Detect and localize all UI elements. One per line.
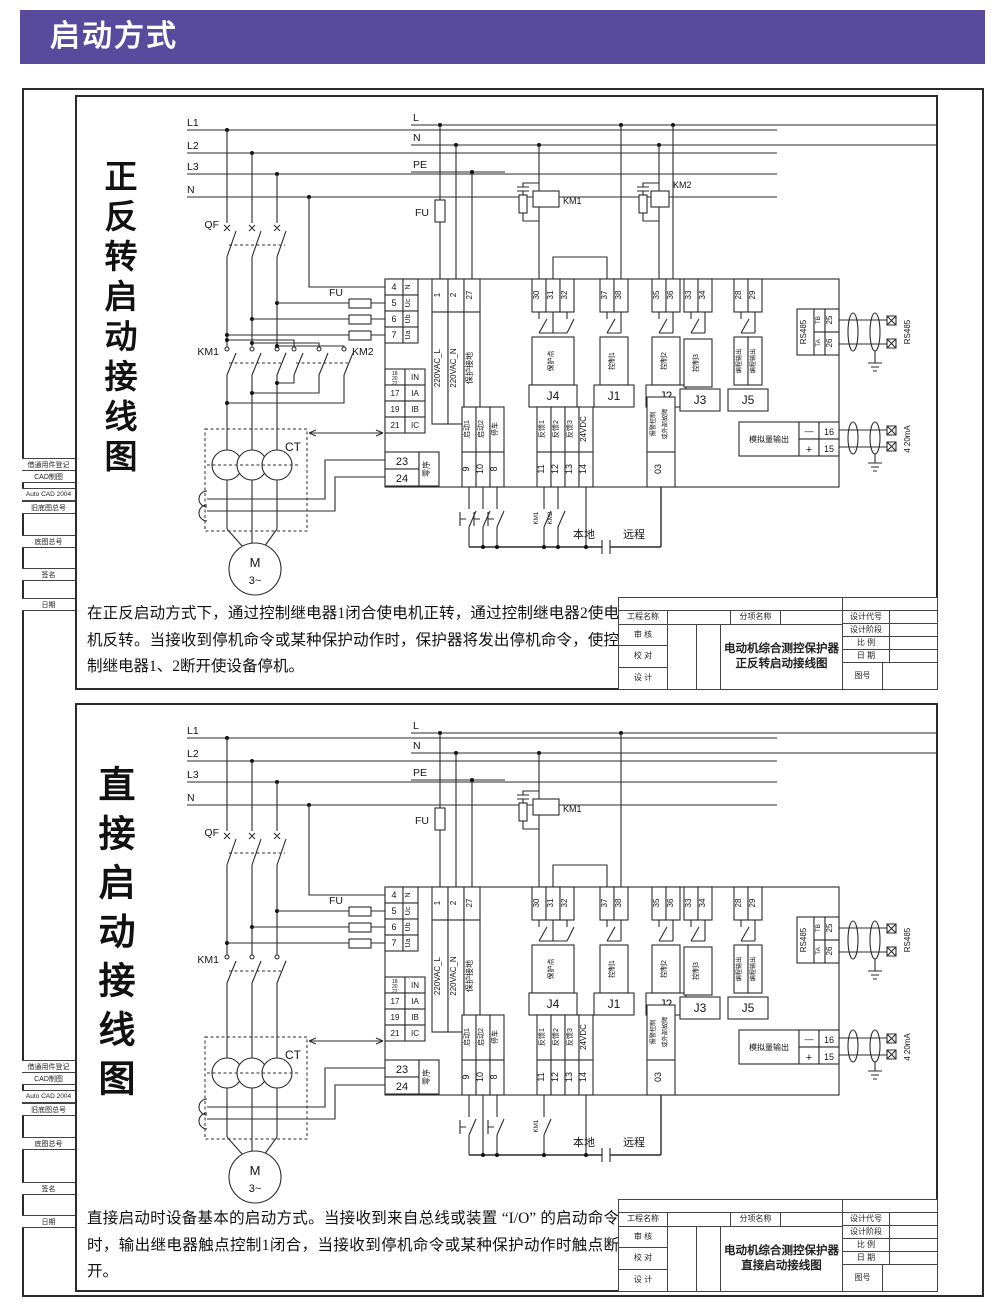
terminal-38: 38 [614, 290, 623, 299]
di-stop-label: 停车 [490, 1030, 499, 1044]
sidebar-cell-sign: 签名 [22, 568, 75, 581]
titleblock-date-label: 日 期 [842, 1251, 890, 1265]
terminal-32: 32 [560, 290, 569, 299]
terminal-10: 10 [475, 1072, 485, 1082]
terminal-29: 29 [748, 898, 757, 907]
terminal-34: 34 [698, 898, 707, 907]
ct-label: CT [285, 1048, 302, 1062]
rail-l-label: L [413, 720, 419, 732]
di-fb3-label: 反馈3 [565, 420, 574, 438]
di-fb1-label: 反馈1 [537, 1028, 546, 1046]
qf-label: QF [204, 827, 219, 839]
km1-aux-label: KM1 [533, 1119, 540, 1132]
terminal-16: 16 [824, 1035, 834, 1045]
terminal-8: 8 [489, 1074, 499, 1079]
terminal-28: 28 [734, 898, 743, 907]
j1-label: J1 [608, 389, 621, 403]
terminal-33: 33 [684, 290, 693, 299]
terminal-19: 19 [391, 405, 400, 414]
terminal-5-fn: Uc [405, 298, 412, 307]
zero-seq-terminals: 23 24 零序 [385, 1060, 439, 1094]
rail-l3-label: L3 [187, 769, 199, 781]
right-power-rails: L N PE FU KM1 [411, 720, 937, 887]
terminal-24: 24 [396, 473, 408, 485]
terminal-16: 16 [824, 427, 834, 437]
rs485-ext-label: RS485 [903, 927, 912, 952]
rail-l1-label: L1 [187, 725, 199, 737]
terminal-33: 33 [684, 898, 693, 907]
fu-label: FU [329, 287, 343, 299]
voltage-terminals: 4 5 6 7 N Uc Ub Ua [385, 279, 418, 343]
terminal-27: 27 [465, 290, 474, 299]
relay-group-j4: 30 31 32 保护点 J4 [529, 887, 577, 1015]
titleblock-proof-label: 校 对 [618, 645, 668, 668]
titleblock-proof-label: 校 对 [618, 1247, 668, 1270]
rs485-screw-terminals [887, 924, 896, 956]
rs485-ground-icon [868, 959, 882, 979]
sidebar-cell-base-no: 底图总号 [22, 1137, 75, 1150]
terminal-9: 9 [461, 1074, 471, 1079]
km1-label: KM1 [197, 954, 219, 966]
terminal-4-fn: N [405, 892, 412, 897]
terminal-25: 25 [825, 923, 834, 932]
km1-coil-label: KM1 [563, 804, 582, 814]
titleblock-subitem-label: 分项名称 [730, 610, 781, 625]
titleblock-stage-value [889, 1225, 938, 1239]
terminal-35: 35 [652, 290, 661, 299]
terminal-25: 25 [825, 315, 834, 324]
page-title: 启动方式 [50, 20, 178, 53]
local-label: 本地 [573, 527, 595, 541]
km1-coil-label: KM1 [563, 196, 582, 206]
titleblock-subitem-value [780, 1212, 843, 1227]
sidebar-cell-autocad: Auto CAD 2004 [22, 1090, 75, 1103]
current-terminals: 18 20 22 IN 17 IA 19 IB 21 IC [385, 369, 425, 433]
terminal-6: 6 [391, 922, 396, 932]
relay-group-j1: 37 38 控制1 J1 [594, 279, 634, 407]
j5-label: J5 [742, 1001, 755, 1015]
titleblock-code-value [889, 610, 938, 624]
relay-group-j2: 35 36 控制2 J2 [646, 887, 686, 1015]
titleblock-diagram-name: 正反转启动接线图 [736, 658, 828, 671]
terminal-1: 1 [433, 900, 442, 905]
terminal-32: 32 [560, 898, 569, 907]
terminal-37: 37 [600, 290, 609, 299]
titleblock-fig-label: 图号 [842, 662, 883, 690]
direct-start-frame: 直接启动接线图 L1 L2 L3 N QF KM1 [75, 703, 938, 1292]
terminal-11: 11 [536, 464, 546, 473]
km2-label: KM2 [352, 346, 374, 358]
terminal-23: 23 [396, 456, 408, 468]
analog-ext-label: 4 20mA [903, 1033, 912, 1061]
terminal-13: 13 [564, 464, 574, 474]
zero-seq-label: 零序 [421, 461, 431, 477]
terminal-37: 37 [600, 898, 609, 907]
voltage-terminals: 4 5 6 7 N Uc Ub Ua [385, 887, 418, 951]
di-fb1-label: 反馈1 [537, 420, 546, 438]
titleblock-review-label: 审 核 [618, 624, 668, 646]
titleblock-scale-label: 比 例 [842, 636, 890, 650]
in-label: IN [411, 373, 419, 382]
bridge-31-37 [553, 257, 607, 279]
sidebar-cell-date: 日期 [22, 598, 75, 611]
terminal-4-fn: N [405, 284, 412, 289]
forward-reverse-titleblock: 工程名称 分项名称 审 核 校 对 设 计 电动机综合测控保护器 正反转启动接线… [618, 597, 938, 690]
titleblock-fig-value [882, 1264, 938, 1292]
terminal-19: 19 [391, 1013, 400, 1022]
zero-seq-terminals: 23 24 零序 [385, 452, 439, 486]
titleblock-project-value [667, 1212, 731, 1227]
rail-n-label: N [187, 792, 195, 804]
j2-fn: 控制2 [659, 352, 668, 370]
ic-label: IC [411, 1029, 419, 1038]
terminal-2-fn: 220VAC_N [449, 348, 458, 388]
j4-label: J4 [547, 389, 560, 403]
direct-start-titleblock: 工程名称 分项名称 审 核 校 对 设 计 电动机综合测控保护器 直接启动接线图… [618, 1199, 938, 1292]
relay-group-j1: 37 38 控制1 J1 [594, 887, 634, 1015]
titleblock-device-name: 电动机综合测控保护器 [724, 1245, 839, 1258]
in-num-22: 22 [392, 989, 398, 995]
analog-label: 模拟量输出 [749, 1042, 789, 1052]
terminal-15: 15 [824, 444, 834, 454]
sidebar-cell-sign: 签名 [22, 1182, 75, 1195]
rail-n-label: N [187, 184, 195, 196]
terminal-30: 30 [532, 898, 541, 907]
sidebar-cell-cad: CAD制图 [22, 1072, 75, 1085]
rail-pe-label: PE [413, 767, 427, 779]
power-terminals: 1 2 27 220VAC_L 220VAC_N 保护接地 [432, 279, 480, 424]
j5-fn1: 编程输出 [735, 957, 743, 982]
j1-fn: 控制1 [607, 352, 616, 370]
rail-n2-label: N [413, 740, 421, 752]
titleblock-code-label: 设计代号 [842, 1212, 890, 1226]
titleblock-device-name: 电动机综合测控保护器 [724, 643, 839, 656]
titleblock-fig-label: 图号 [842, 1264, 883, 1292]
di-fb2-label: 反馈2 [551, 1028, 560, 1046]
terminal-7-fn: Ua [405, 330, 412, 339]
j2-fn: 控制2 [659, 960, 668, 978]
j5-label: J5 [742, 393, 755, 407]
j5-fn1: 编程输出 [735, 349, 743, 374]
titleblock-sign-col1 [667, 1226, 697, 1292]
terminal-7-fn: Ua [405, 938, 412, 947]
terminal-29: 29 [748, 290, 757, 299]
relay-group-j2: 35 36 控制2 J2 [646, 279, 686, 407]
sidebar-cell-date: 日期 [22, 1215, 75, 1228]
sidebar-cell-old-no: 旧底图总号 [22, 501, 75, 514]
km1-main-contacts: KM1 [197, 954, 286, 1137]
terminal-38: 38 [614, 898, 623, 907]
analog-minus: — [805, 426, 814, 436]
terminal-13: 13 [564, 1072, 574, 1082]
titleblock-project-label: 工程名称 [618, 1212, 668, 1227]
titleblock-drawing-name: 电动机综合测控保护器 直接启动接线图 [720, 1226, 843, 1292]
terminal-17: 17 [391, 997, 400, 1006]
titleblock-code-label: 设计代号 [842, 610, 890, 624]
j3-fn: 控制3 [691, 962, 700, 980]
analog-screw-terminals [887, 1034, 896, 1059]
titleblock-subitem-label: 分项名称 [730, 1212, 781, 1227]
di-start1-label: 启动1 [462, 420, 471, 438]
rs485-ext-label: RS485 [903, 319, 912, 344]
terminal-10: 10 [475, 464, 485, 474]
terminal-5: 5 [391, 906, 396, 916]
terminal-23: 23 [396, 1064, 408, 1076]
sidebar-cell-base-no: 底图总号 [22, 535, 75, 548]
analog-label: 模拟量输出 [749, 434, 789, 444]
terminal-03: 03 [653, 1072, 663, 1082]
bridge-31-37 [553, 865, 607, 887]
sidebar-cell-cad: CAD制图 [22, 470, 75, 483]
relay-group-j5: 28 29 编程输出 编程输出 J5 [728, 887, 768, 1019]
terminal-24: 24 [396, 1081, 408, 1093]
relay-group-j4: 30 31 32 保护点 J4 [529, 279, 577, 407]
ic-label: IC [411, 421, 419, 430]
titleblock-blank-row [618, 1199, 843, 1213]
di-start1-label: 启动1 [462, 1028, 471, 1046]
terminal-14: 14 [578, 1072, 588, 1082]
terminal-7: 7 [391, 938, 396, 948]
terminal-36: 36 [666, 290, 675, 299]
left-power-rails: L1 L2 L3 N [187, 117, 777, 287]
j5-fn2: 编程输出 [749, 957, 757, 982]
titleblock-date-value [889, 649, 938, 663]
sidebar-cell-old-no: 旧底图总号 [22, 1103, 75, 1116]
terminal-6-fn: Ub [405, 314, 412, 323]
j3-label: J3 [694, 393, 707, 407]
analog-ground-icon [868, 454, 882, 471]
terminal-15: 15 [824, 1052, 834, 1062]
j1-fn: 控制1 [607, 960, 616, 978]
terminal-03: 03 [653, 464, 663, 474]
control-wiring: KM1 KM2 本地 远程 [460, 487, 661, 554]
j4-fn: 保护点 [546, 959, 555, 980]
analog-ext-label: 4 20mA [903, 425, 912, 453]
terminal-5-fn: Uc [405, 906, 412, 915]
terminal-17: 17 [391, 389, 400, 398]
ia-label: IA [411, 997, 419, 1006]
titleblock-date-value [889, 1251, 938, 1265]
alarm-label-2: 或外部故障 [661, 409, 669, 440]
titleblock-scale-value [889, 636, 938, 650]
motor-phase: 3~ [249, 575, 262, 587]
titleblock-sign-col2 [696, 624, 721, 690]
terminal-14: 14 [578, 464, 588, 474]
sidebar-cell-autocad: Auto CAD 2004 [22, 488, 75, 501]
di-start2-label: 启动2 [476, 420, 485, 438]
analog-plus: + [806, 1052, 812, 1064]
titleblock-scale-label: 比 例 [842, 1238, 890, 1252]
titleblock-sign-col2 [696, 1226, 721, 1292]
km1-coil: KM1 [517, 751, 582, 887]
page-title-bar: 启动方式 [20, 10, 985, 64]
remote-label: 远程 [623, 528, 645, 541]
forward-reverse-schematic: L1 L2 L3 N QF KM1 [77, 97, 940, 597]
fu-label: FU [329, 895, 343, 907]
qf-label: QF [204, 219, 219, 231]
terminal-4: 4 [391, 282, 396, 292]
control-wiring: KM1 本地 远程 [460, 1095, 661, 1162]
rail-n2-label: N [413, 132, 421, 144]
terminal-12: 12 [550, 1072, 560, 1082]
terminal-5: 5 [391, 298, 396, 308]
titleblock-blank-row [618, 597, 843, 611]
titleblock-date-label: 日 期 [842, 649, 890, 663]
titleblock-code-value [889, 1212, 938, 1226]
zero-sequence-ct [199, 491, 207, 521]
motor: M 3~ [227, 529, 281, 595]
alarm-label-1: 报警控制 [649, 412, 657, 437]
terminal-6: 6 [391, 314, 396, 324]
titleblock-sign-col1 [667, 624, 697, 690]
terminal-1: 1 [433, 292, 442, 297]
titleblock-design-label: 设 计 [618, 667, 668, 690]
titleblock-drawing-name: 电动机综合测控保护器 正反转启动接线图 [720, 624, 843, 690]
rail-pe-label: PE [413, 159, 427, 171]
rail-l2-label: L2 [187, 140, 199, 152]
rs485-tb: TB [815, 316, 822, 324]
terminal-1-fn: 220VAC_L [433, 348, 442, 387]
rs485-ta: TA [815, 338, 822, 346]
terminal-7: 7 [391, 330, 396, 340]
terminal-2-fn: 220VAC_N [449, 956, 458, 996]
right-power-rails: L N PE FU KM1 [411, 112, 937, 279]
terminal-9: 9 [461, 466, 471, 471]
rs485-label: RS485 [799, 319, 808, 344]
ct-label: CT [285, 440, 302, 454]
titleblock-subitem-value [780, 610, 843, 625]
ia-label: IA [411, 389, 419, 398]
terminal-6-fn: Ub [405, 922, 412, 931]
remote-label: 远程 [623, 1136, 645, 1149]
j4-label: J4 [547, 997, 560, 1011]
alarm-label-2: 或外部故障 [661, 1017, 669, 1048]
di-fb3-label: 反馈3 [565, 1028, 574, 1046]
titleblock-right-blank [842, 1199, 938, 1213]
km2-main-contacts: KM2 [225, 338, 374, 405]
km1-main-contacts: KM1 [197, 346, 286, 529]
zero-seq-label: 零序 [421, 1069, 431, 1085]
local-label: 本地 [573, 1135, 595, 1149]
terminal-11: 11 [536, 1072, 546, 1081]
terminal-12: 12 [550, 464, 560, 474]
j3-label: J3 [694, 1001, 707, 1015]
titleblock-stage-label: 设计阶段 [842, 623, 890, 637]
terminal-2: 2 [449, 900, 458, 905]
analog-plus: + [806, 444, 812, 456]
qf-breaker: QF [204, 219, 286, 347]
terminal-31: 31 [546, 898, 555, 907]
titleblock-scale-value [889, 1238, 938, 1252]
rs485-ground-icon [868, 351, 882, 371]
km2-aux-label: KM2 [547, 511, 554, 524]
terminal-34: 34 [698, 290, 707, 299]
di-stop-label: 停车 [490, 422, 499, 436]
rs485-tb: TB [815, 924, 822, 932]
titleblock-project-label: 工程名称 [618, 610, 668, 625]
fu2-label: FU [415, 207, 429, 219]
analog-minus: — [805, 1034, 814, 1044]
rail-l3-label: L3 [187, 161, 199, 173]
motor-letter: M [250, 1163, 261, 1178]
km2-coil-label: KM2 [673, 180, 692, 190]
ib-label: IB [411, 1013, 419, 1022]
terminal-30: 30 [532, 290, 541, 299]
titleblock-diagram-name: 直接启动接线图 [741, 1260, 822, 1273]
alarm-label-1: 报警控制 [649, 1020, 657, 1045]
analog-screw-terminals [887, 426, 896, 451]
motor: M 3~ [227, 1137, 281, 1203]
fuse-row: FU [225, 895, 385, 948]
zero-sequence-ct [199, 1099, 207, 1129]
terminal-27-fn: 保护接地 [464, 352, 474, 384]
ib-label: IB [411, 405, 419, 414]
rs485-label: RS485 [799, 927, 808, 952]
terminal-8: 8 [489, 466, 499, 471]
rs485-ta: TA [815, 946, 822, 954]
di-start2-label: 启动2 [476, 1028, 485, 1046]
di-24vdc-label: 24VDC [579, 1024, 588, 1050]
rs485-screw-terminals [887, 316, 896, 348]
terminal-27-fn: 保护接地 [464, 960, 474, 992]
terminal-1-fn: 220VAC_L [433, 956, 442, 995]
titleblock-stage-value [889, 623, 938, 637]
titleblock-design-label: 设 计 [618, 1269, 668, 1292]
in-num-22: 22 [392, 381, 398, 387]
km1-coil: KM1 [517, 143, 582, 279]
terminal-26: 26 [825, 338, 834, 347]
power-terminals: 1 2 27 220VAC_L 220VAC_N 保护接地 [432, 887, 480, 1032]
terminal-35: 35 [652, 898, 661, 907]
di-24vdc-label: 24VDC [579, 416, 588, 442]
km2-coil: KM2 [637, 143, 692, 279]
terminal-2: 2 [449, 292, 458, 297]
terminal-36: 36 [666, 898, 675, 907]
relay-group-j5: 28 29 编程输出 编程输出 J5 [728, 279, 768, 411]
j4-fn: 保护点 [546, 351, 555, 372]
motor-letter: M [250, 555, 261, 570]
fuse-row: FU [225, 287, 385, 340]
titleblock-right-blank [842, 597, 938, 611]
analog-ground-icon [868, 1062, 882, 1079]
terminal-27: 27 [465, 898, 474, 907]
titleblock-project-value [667, 610, 731, 625]
titleblock-fig-value [882, 662, 938, 690]
km1-aux-label: KM1 [533, 511, 540, 524]
terminal-21: 21 [391, 421, 400, 430]
forward-reverse-description: 在正反启动方式下，通过控制继电器1闭合使电机正转，通过控制继电器2使电机反转。当… [87, 601, 619, 681]
current-terminals: 18 20 22 IN 17 IA 19 IB 21 IC [385, 977, 425, 1041]
rail-l1-label: L1 [187, 117, 199, 129]
forward-reverse-frame: 正反转启动接线图 L1 L2 L3 N QF KM1 [75, 95, 938, 690]
terminal-4: 4 [391, 890, 396, 900]
j5-fn2: 编程输出 [749, 349, 757, 374]
km1-label: KM1 [197, 346, 219, 358]
titleblock-review-label: 审 核 [618, 1226, 668, 1248]
terminal-28: 28 [734, 290, 743, 299]
rail-l2-label: L2 [187, 748, 199, 760]
terminal-21: 21 [391, 1029, 400, 1038]
terminal-31: 31 [546, 290, 555, 299]
fu2-label: FU [415, 815, 429, 827]
terminal-26: 26 [825, 946, 834, 955]
direct-start-description: 直接启动时设备基本的启动方式。当接收到来自总线或装置 “I/O” 的启动命令时，… [87, 1206, 619, 1286]
left-power-rails: L1 L2 L3 N [187, 725, 777, 895]
rail-l-label: L [413, 112, 419, 124]
di-fb2-label: 反馈2 [551, 420, 560, 438]
titleblock-stage-label: 设计阶段 [842, 1225, 890, 1239]
direct-start-schematic: L1 L2 L3 N QF KM1 FU [77, 705, 940, 1205]
